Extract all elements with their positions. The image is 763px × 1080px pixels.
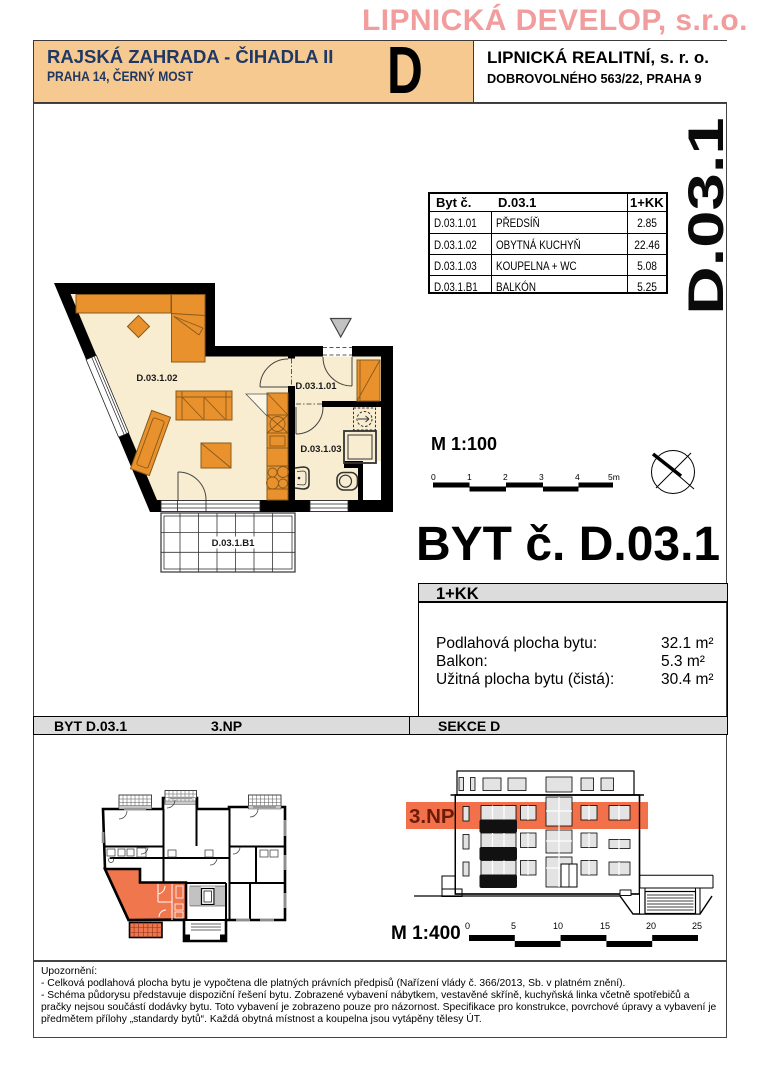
- svg-text:25: 25: [692, 921, 702, 931]
- svg-text:5: 5: [511, 921, 516, 931]
- svg-text:D.03.1.01: D.03.1.01: [295, 381, 337, 392]
- svg-text:0: 0: [431, 472, 436, 482]
- svg-text:4: 4: [575, 472, 580, 482]
- svg-text:2: 2: [503, 472, 508, 482]
- svg-text:0: 0: [465, 921, 470, 931]
- svg-text:3: 3: [539, 472, 544, 482]
- svg-text:D.03.1.03: D.03.1.03: [300, 444, 341, 455]
- svg-text:10: 10: [553, 921, 563, 931]
- svg-text:D.03.1.02: D.03.1.02: [136, 373, 177, 384]
- svg-text:15: 15: [600, 921, 610, 931]
- svg-text:5m: 5m: [608, 472, 620, 482]
- svg-text:D.03.1.B1: D.03.1.B1: [212, 538, 255, 549]
- svg-text:3.NP: 3.NP: [409, 805, 455, 828]
- svg-text:20: 20: [646, 921, 656, 931]
- svg-text:1: 1: [467, 472, 472, 482]
